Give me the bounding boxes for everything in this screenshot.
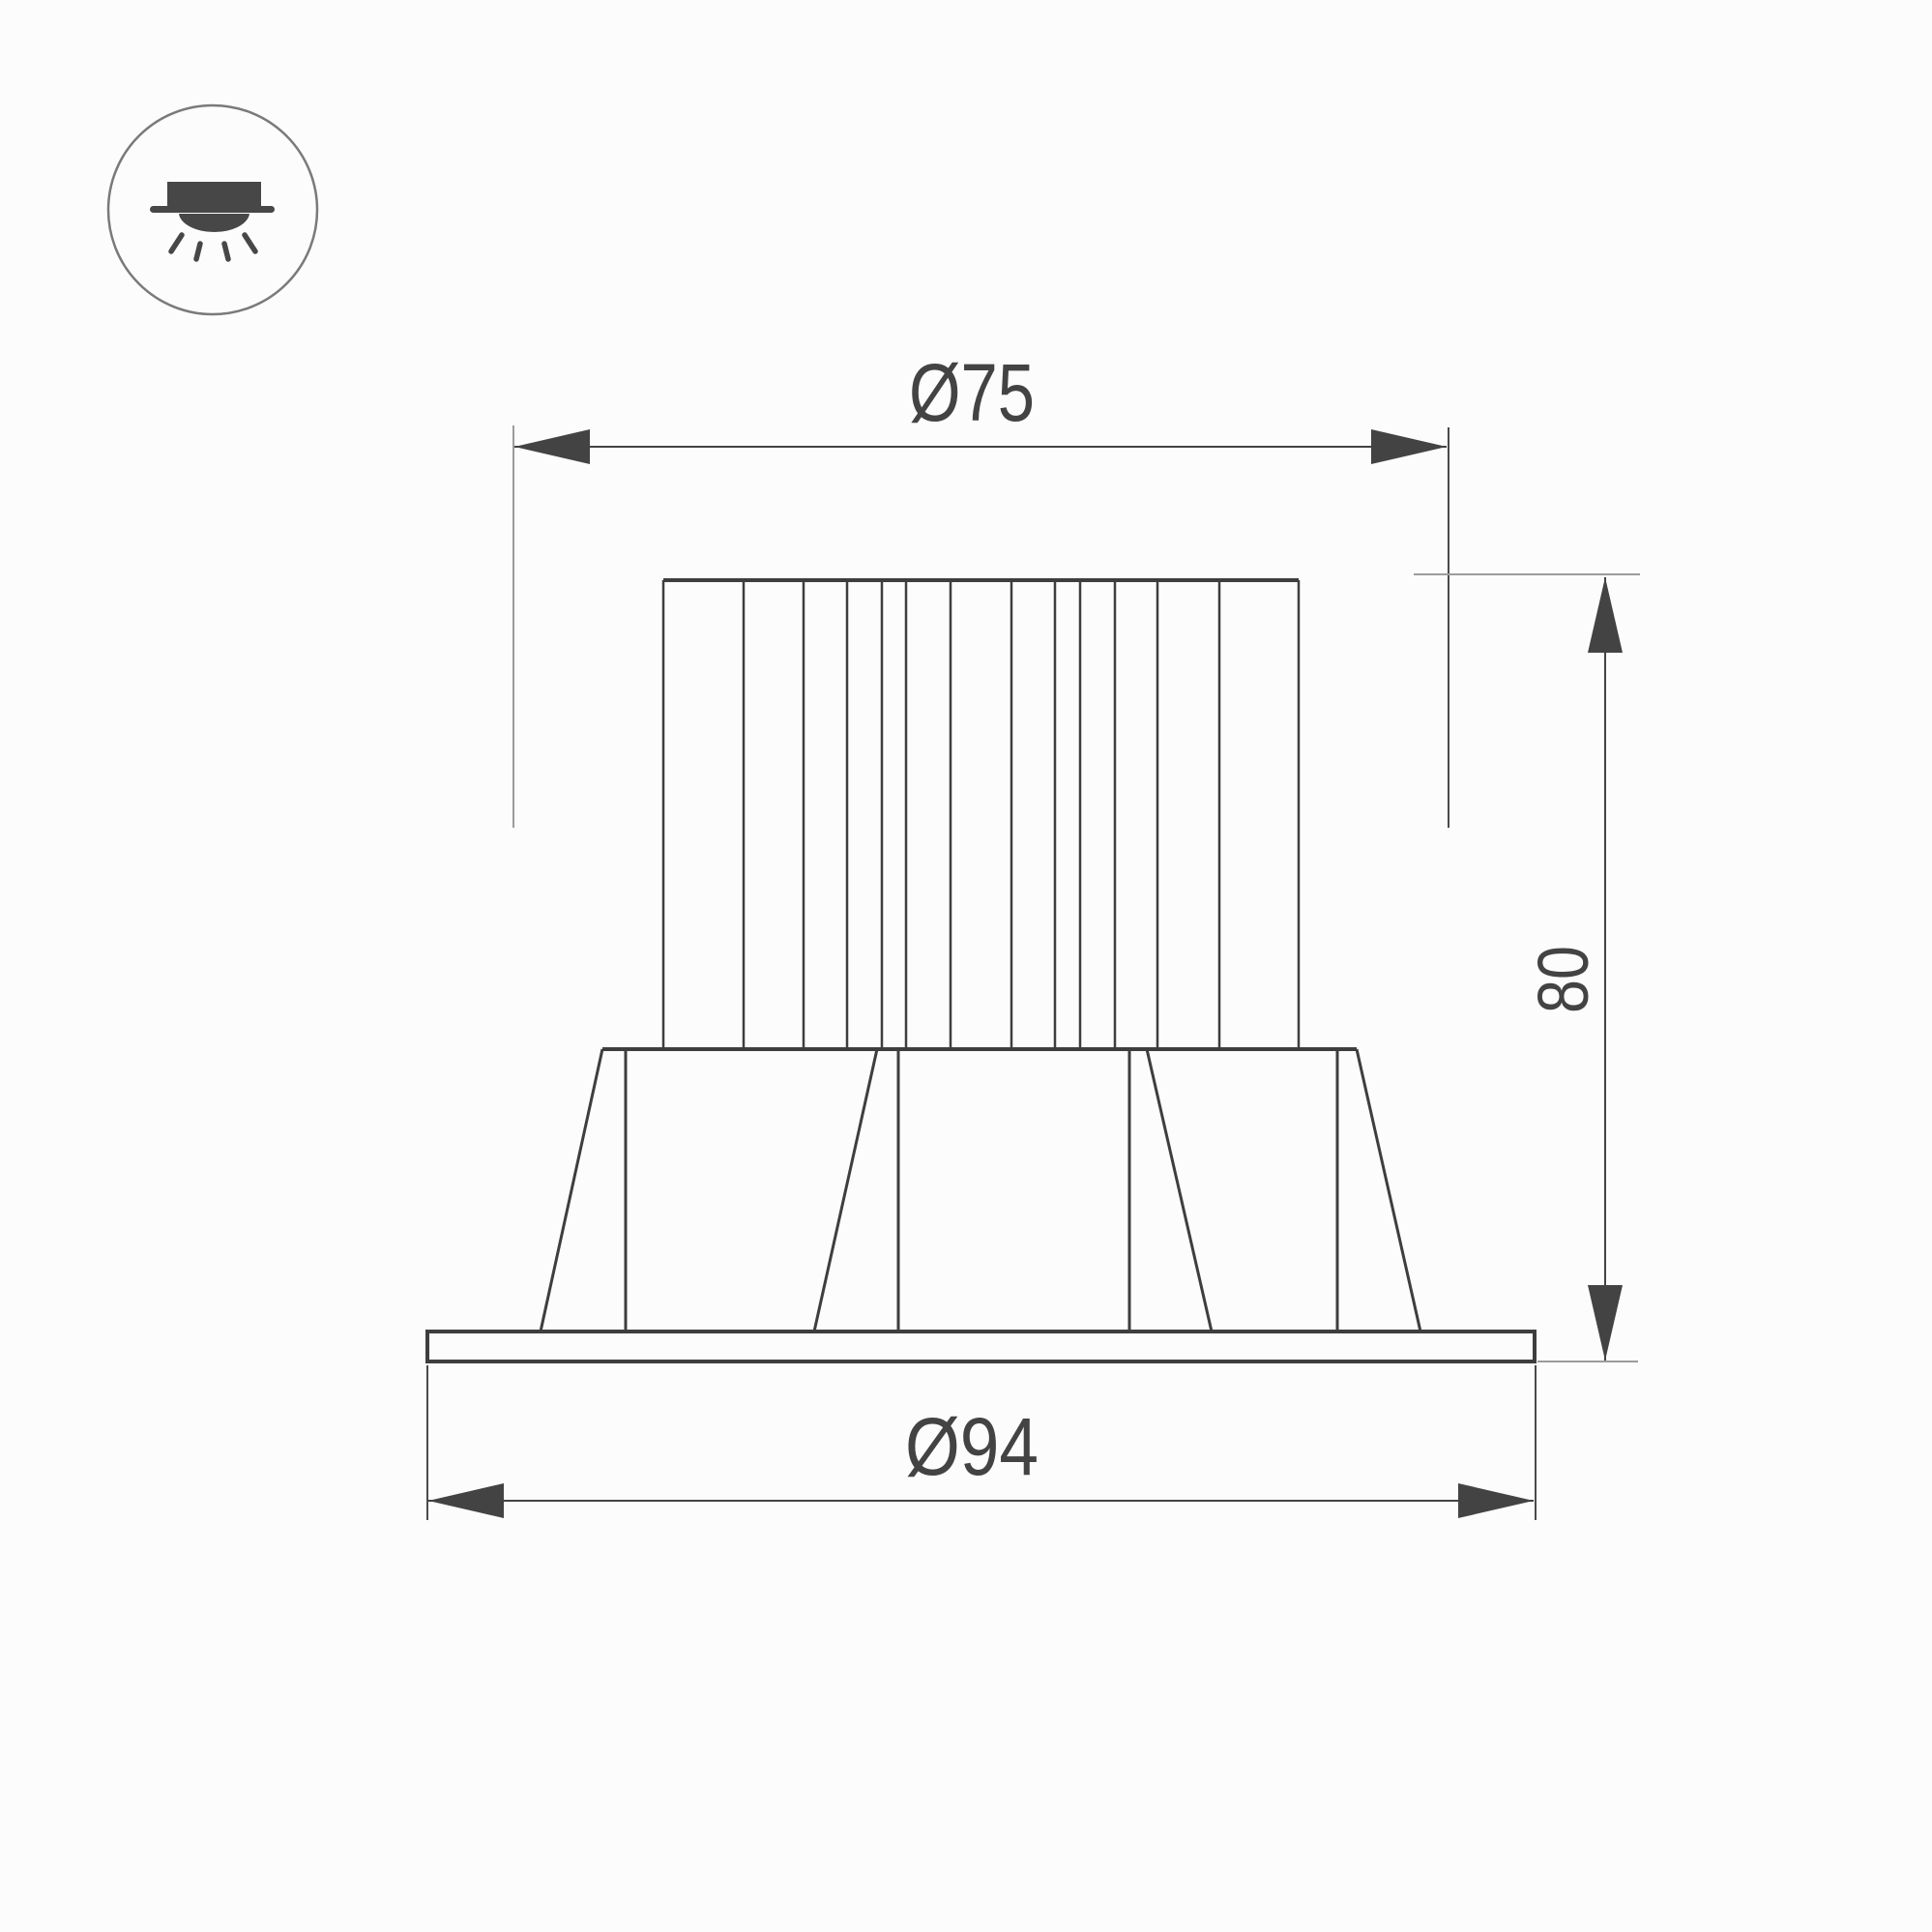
arrowhead-right <box>1458 1483 1534 1518</box>
body-left-slant-edge <box>541 1049 602 1332</box>
dimension-label-top-diameter: Ø75 <box>909 347 1035 438</box>
arrowhead-bottom <box>1588 1285 1623 1361</box>
icon-light-dome <box>179 214 249 232</box>
icon-ceiling-line <box>150 206 275 213</box>
dimension-label-height: 80 <box>1523 946 1603 1013</box>
body-right-slant-edge <box>1357 1049 1420 1332</box>
heatsink-fins <box>663 580 1299 1049</box>
drawing-page: Ø75 80 Ø94 <box>0 0 1932 1932</box>
luminaire-body <box>541 1049 1420 1332</box>
body-panel-slant-line <box>814 1049 877 1332</box>
dimension-bottom-diameter: Ø94 <box>427 1365 1536 1520</box>
icon-light-ray <box>171 235 182 251</box>
icon-light-ray <box>224 244 228 259</box>
dimension-top-diameter: Ø75 <box>513 347 1449 828</box>
heatsink <box>663 580 1299 1049</box>
dimension-drawing: Ø75 80 Ø94 <box>0 0 1932 1932</box>
arrowhead-left <box>514 429 590 464</box>
recessed-downlight-icon <box>108 105 317 314</box>
body-panel-slant-line <box>1147 1049 1212 1332</box>
icon-lamp-housing <box>167 182 261 209</box>
arrowhead-left <box>428 1483 504 1518</box>
trim-flange <box>427 1332 1535 1361</box>
dimension-label-bottom-diameter: Ø94 <box>905 1401 1039 1492</box>
arrowhead-right <box>1371 429 1447 464</box>
arrowhead-top <box>1588 577 1623 653</box>
icon-light-ray <box>245 235 255 251</box>
icon-light-ray <box>196 244 200 259</box>
